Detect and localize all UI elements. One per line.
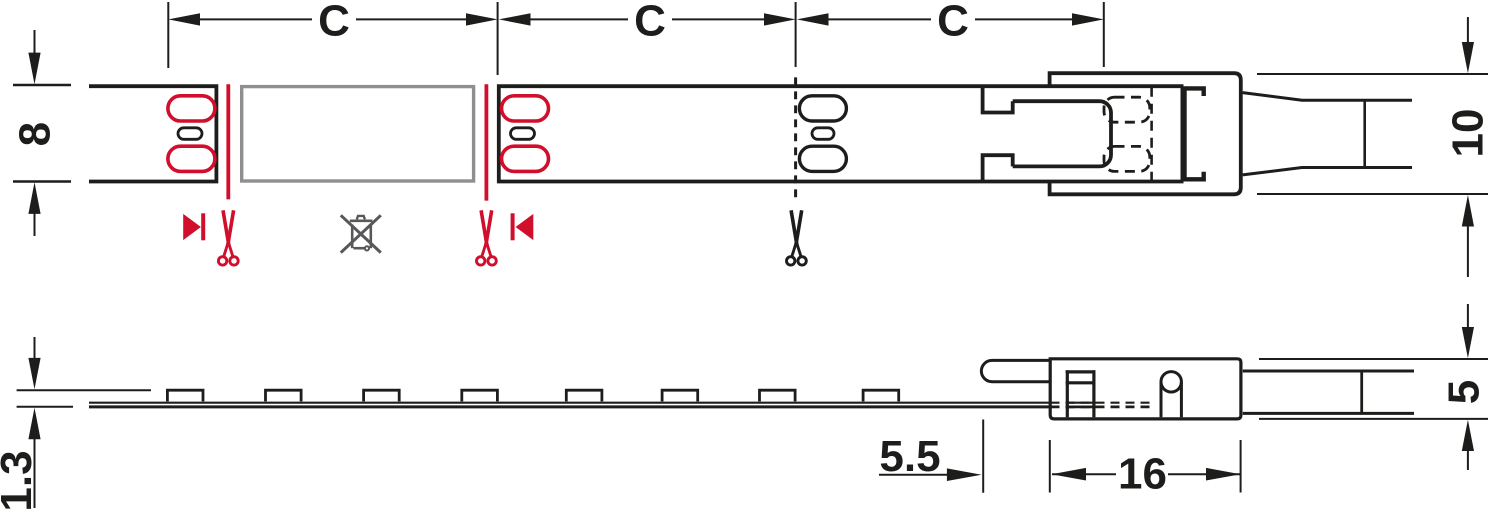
svg-text:10: 10: [1444, 109, 1488, 158]
svg-text:C: C: [318, 0, 350, 46]
svg-text:C: C: [937, 0, 969, 46]
svg-text:5: 5: [1440, 380, 1488, 404]
svg-text:16: 16: [1118, 450, 1167, 499]
svg-text:1.3: 1.3: [0, 450, 41, 511]
svg-text:8: 8: [11, 122, 60, 146]
svg-text:5.5: 5.5: [879, 432, 940, 481]
svg-text:C: C: [634, 0, 666, 46]
